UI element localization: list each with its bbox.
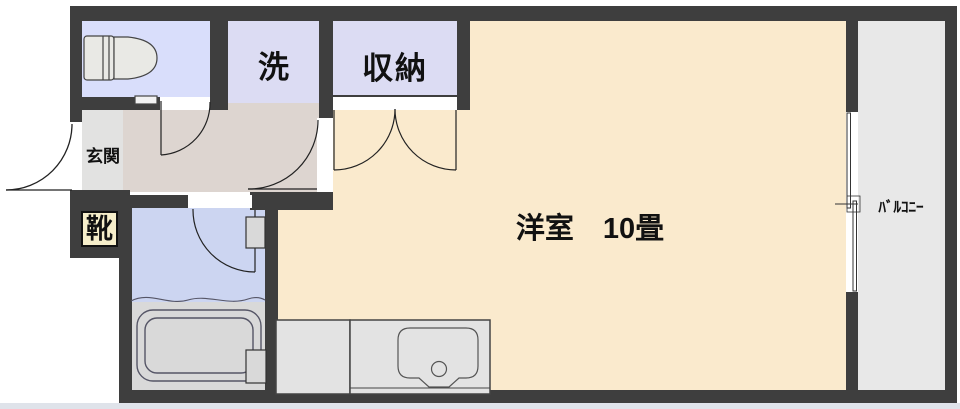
bathroom-lower-floor <box>131 302 265 390</box>
floor-plan: 玄関 洗 収納 靴 洋室 10畳 ﾊﾞﾙｺﾆｰ <box>0 0 960 409</box>
wall-bottom <box>119 390 957 403</box>
wall-bath-right <box>265 200 278 403</box>
shoe-cabinet-label: 靴 <box>86 216 113 243</box>
wall-bath-top <box>130 195 188 208</box>
room-main-c <box>278 210 335 390</box>
wall-hall-bottom <box>250 192 333 210</box>
western-room-label: 洋室 10畳 <box>440 205 740 247</box>
opening-toilet-door <box>160 97 210 110</box>
wall-balcony-right <box>945 6 957 403</box>
opening-storage-door <box>333 97 457 110</box>
wall-balcony-left-lower <box>846 292 858 390</box>
wall-top <box>70 6 957 21</box>
bathroom-upper-floor <box>131 208 265 302</box>
wall-storage-right <box>457 6 470 110</box>
opening-bath-door <box>188 195 252 208</box>
opening-room-door <box>317 118 331 192</box>
wall-laundry-storage <box>319 6 333 118</box>
entrance-door-swing <box>6 124 72 190</box>
laundry-label: 洗 <box>228 42 319 87</box>
storage-label: 収納 <box>333 43 457 88</box>
room-toilet <box>82 21 215 97</box>
wall-bath-left <box>119 208 132 403</box>
wall-balcony-left-upper <box>846 6 858 112</box>
shoe-cabinet-badge: 靴 <box>81 211 118 247</box>
bottom-margin-strip <box>0 403 960 409</box>
wall-toilet-bottom <box>70 97 160 110</box>
entrance-label: 玄関 <box>80 142 126 167</box>
wall-toilet-laundry <box>210 21 228 110</box>
balcony-label: ﾊﾞﾙｺﾆｰ <box>856 196 946 217</box>
